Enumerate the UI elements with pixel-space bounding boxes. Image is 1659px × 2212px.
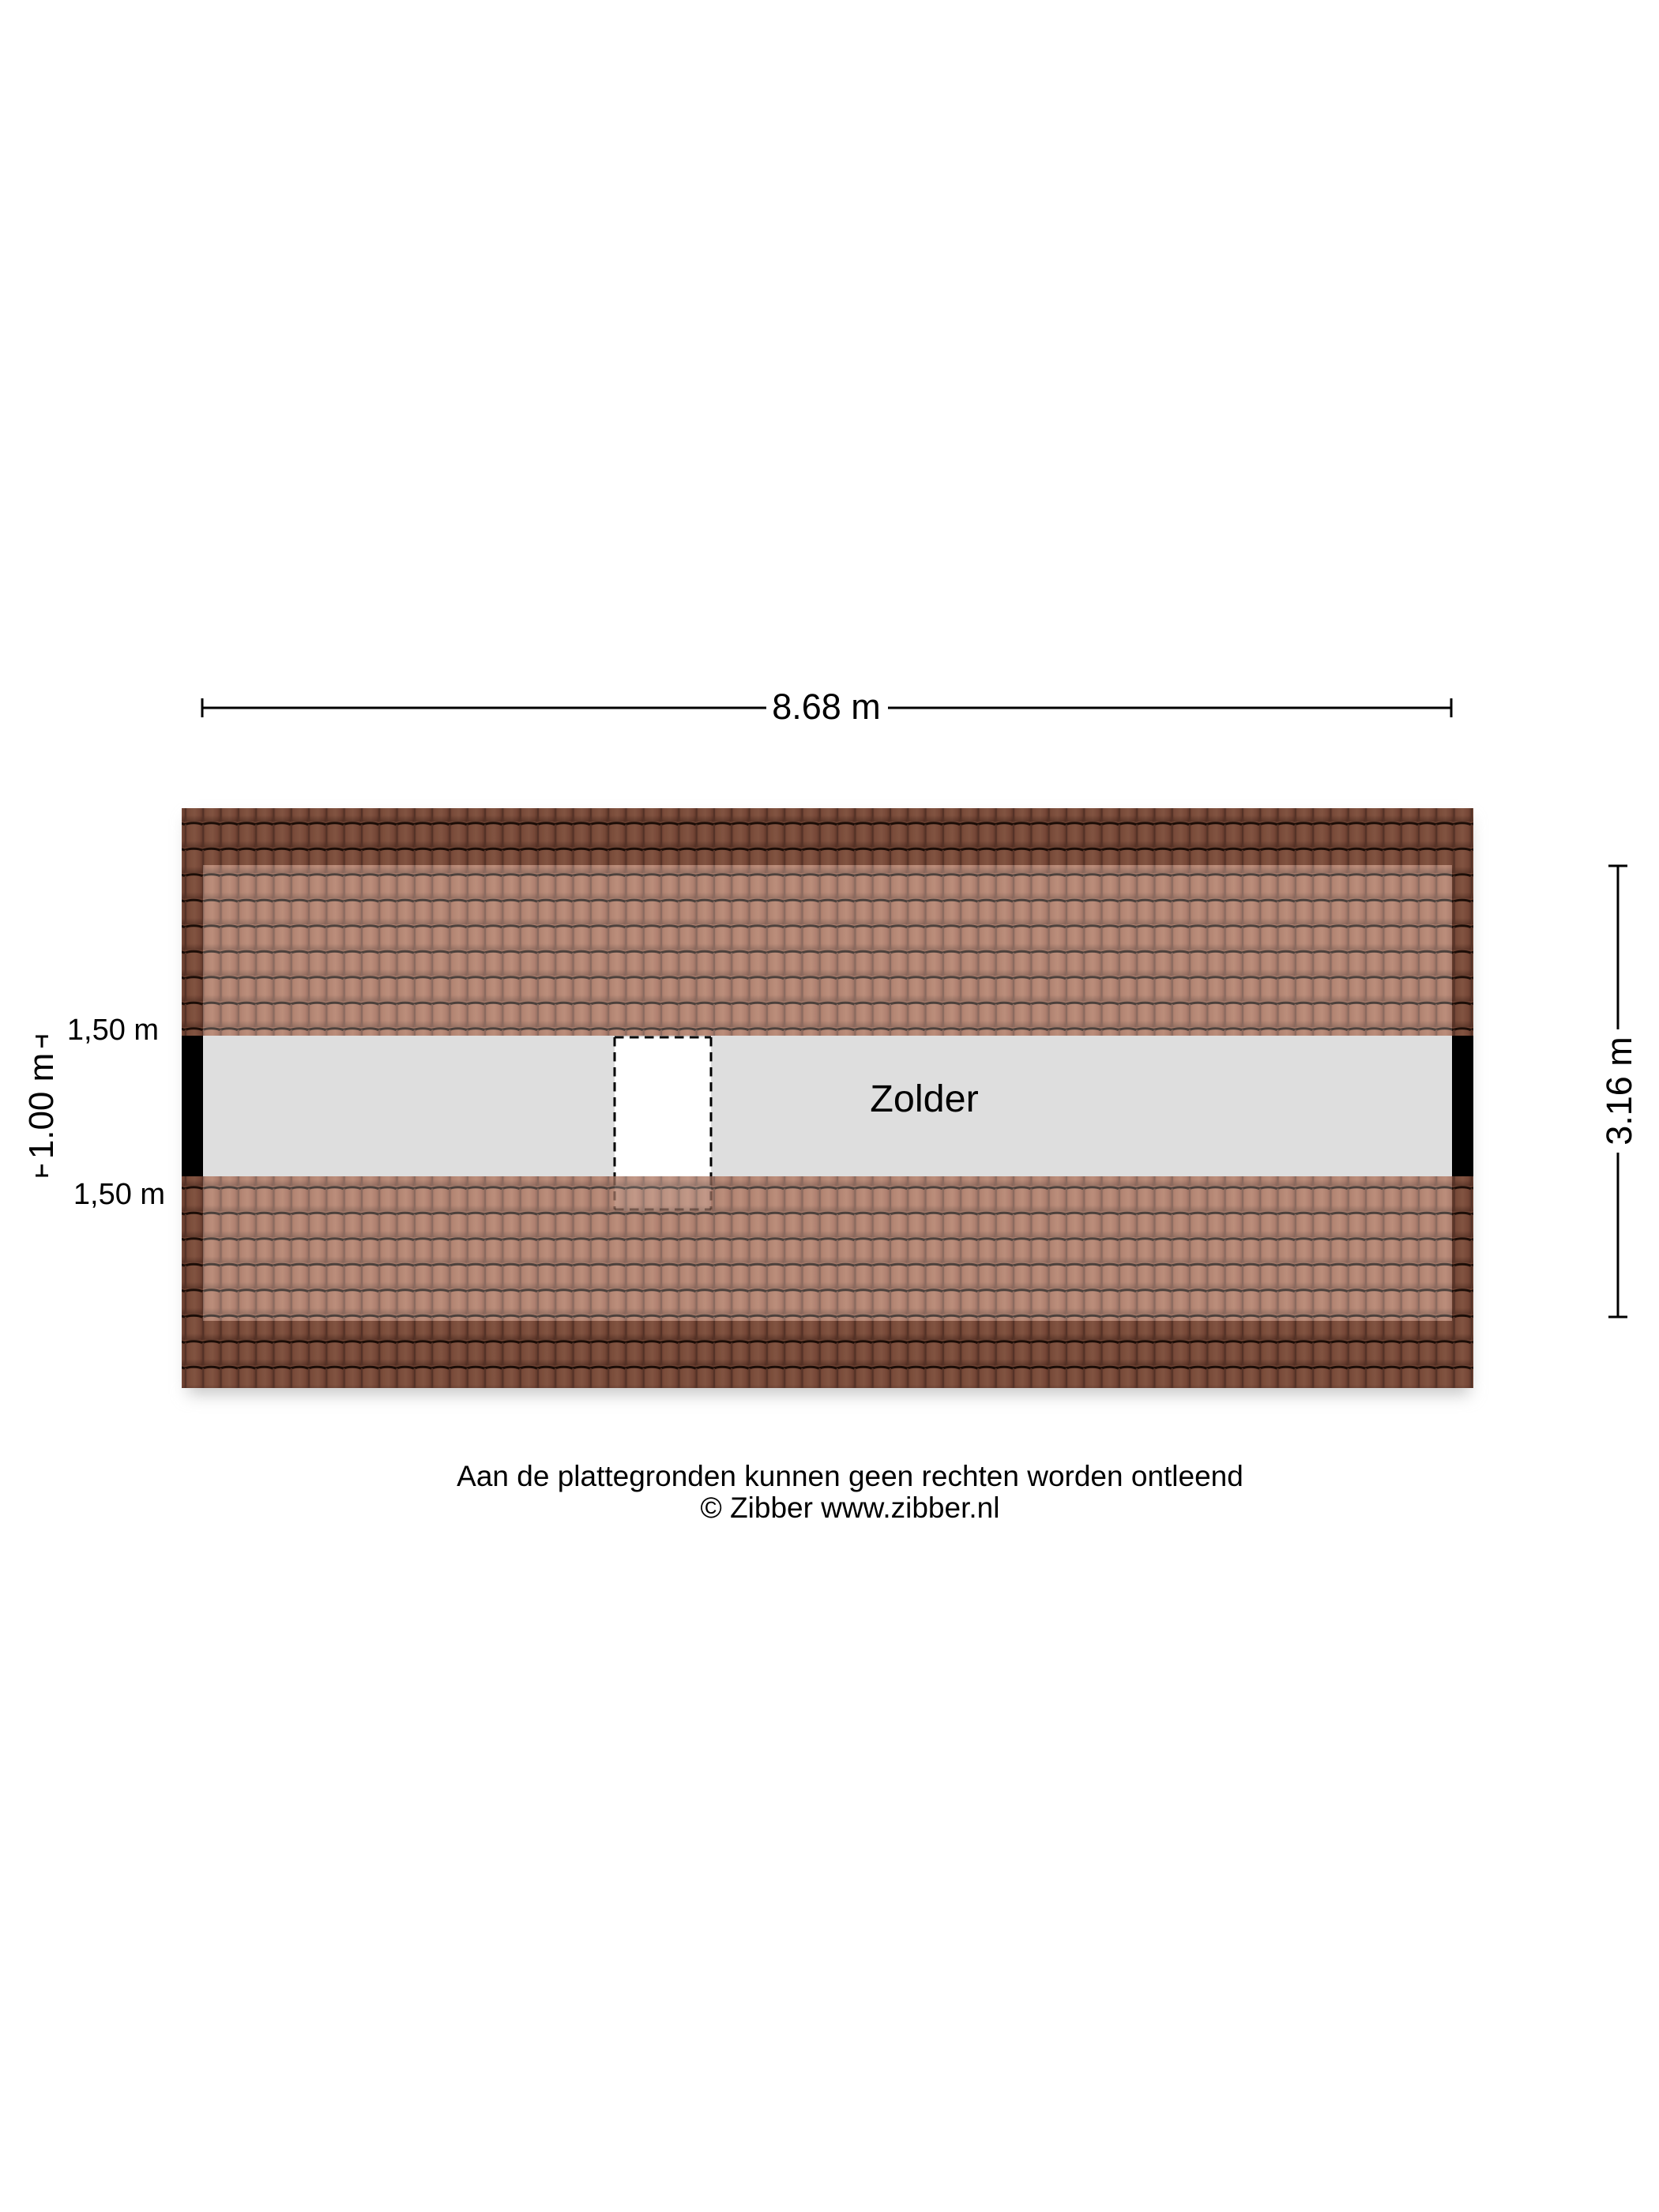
svg-text:1,50 m: 1,50 m: [73, 1178, 165, 1211]
svg-text:Zolder: Zolder: [870, 1078, 978, 1120]
svg-text:Aan de plattegronden kunnen ge: Aan de plattegronden kunnen geen rechten…: [457, 1460, 1243, 1492]
svg-text:1,50 m: 1,50 m: [67, 1014, 159, 1047]
svg-text:© Zibber www.zibber.nl: © Zibber www.zibber.nl: [701, 1492, 1000, 1524]
svg-text:8.68 m: 8.68 m: [772, 687, 881, 727]
svg-text:3.16 m: 3.16 m: [1599, 1036, 1639, 1145]
svg-text:1.00 m: 1.00 m: [22, 1053, 61, 1160]
